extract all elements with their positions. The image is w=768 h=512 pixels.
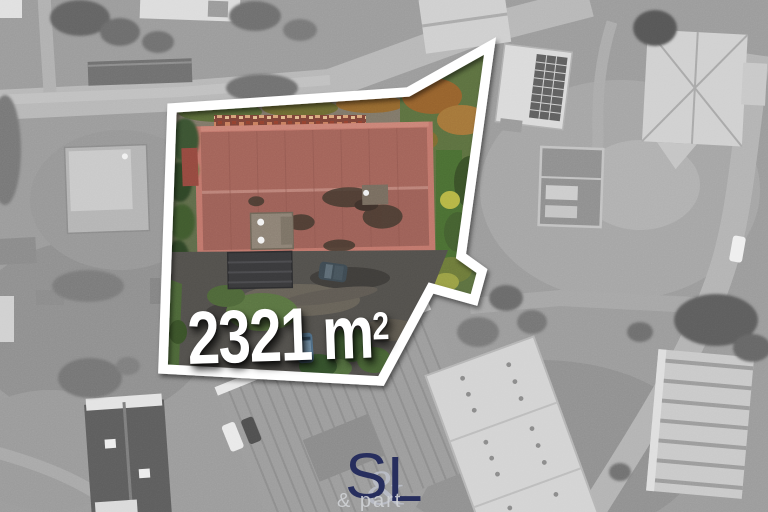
area-value: 2321	[186, 292, 313, 380]
area-exponent: 2	[372, 305, 390, 349]
aerial-photo: 2321m2 S & L & part	[0, 0, 768, 512]
area-label: 2321m2	[186, 294, 391, 376]
grain-overlay	[0, 0, 768, 512]
area-unit: m	[321, 290, 374, 376]
aerial-scene	[0, 0, 768, 512]
